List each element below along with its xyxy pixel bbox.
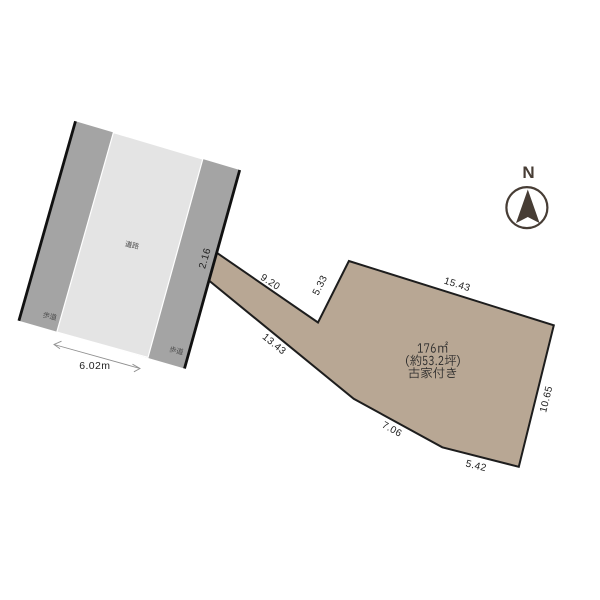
svg-text:6.02m: 6.02m	[79, 360, 110, 372]
svg-text:N: N	[522, 163, 534, 182]
